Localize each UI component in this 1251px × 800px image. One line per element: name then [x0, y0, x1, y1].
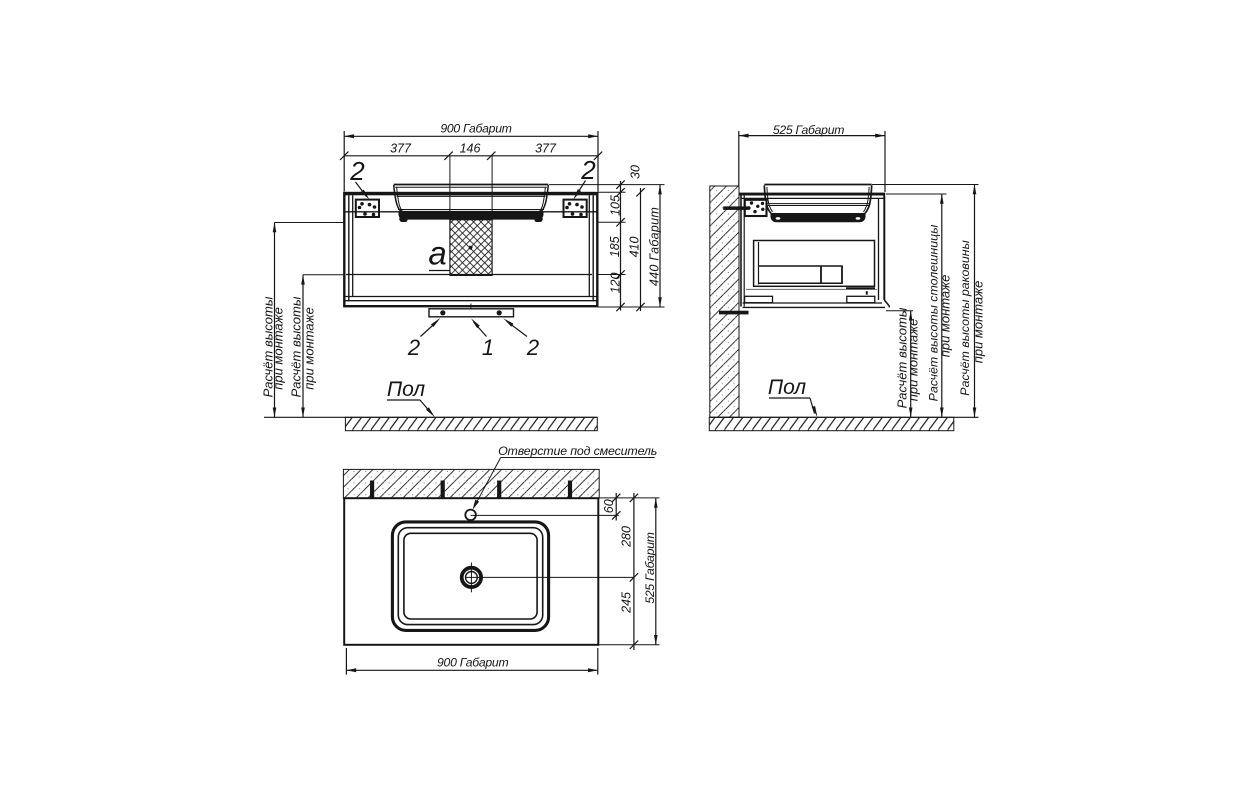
svg-text:120: 120	[608, 273, 622, 294]
svg-text:2: 2	[526, 335, 539, 360]
svg-text:при монтаже: при монтаже	[271, 307, 286, 390]
svg-text:525 Габарит: 525 Габарит	[773, 123, 844, 137]
svg-text:2: 2	[580, 155, 596, 185]
svg-text:377: 377	[390, 141, 412, 155]
svg-text:2: 2	[349, 156, 365, 186]
svg-text:280: 280	[620, 526, 634, 548]
svg-text:при монтаже: при монтаже	[302, 307, 317, 390]
svg-text:2: 2	[407, 335, 420, 360]
svg-text:410: 410	[628, 237, 642, 258]
svg-text:900 Габарит: 900 Габарит	[440, 122, 511, 136]
svg-text:105: 105	[608, 195, 622, 216]
svg-text:Пол: Пол	[387, 378, 425, 401]
svg-text:a: a	[428, 235, 446, 272]
svg-text:Отверстие под смеситель: Отверстие под смеситель	[498, 444, 657, 458]
svg-text:30: 30	[628, 165, 642, 179]
svg-text:440 Габарит: 440 Габарит	[647, 207, 661, 286]
svg-text:377: 377	[535, 141, 557, 155]
svg-text:245: 245	[620, 592, 634, 614]
svg-text:Пол: Пол	[768, 376, 806, 399]
svg-text:900 Габарит: 900 Габарит	[437, 656, 508, 670]
svg-text:1: 1	[482, 335, 494, 360]
svg-text:525 Габарит: 525 Габарит	[643, 532, 657, 603]
svg-text:185: 185	[608, 236, 622, 257]
svg-text:60: 60	[602, 499, 616, 513]
svg-text:при монтаже: при монтаже	[971, 281, 986, 364]
svg-text:при монтаже: при монтаже	[906, 319, 921, 402]
svg-text:146: 146	[460, 141, 481, 155]
svg-text:при монтаже: при монтаже	[937, 275, 952, 358]
